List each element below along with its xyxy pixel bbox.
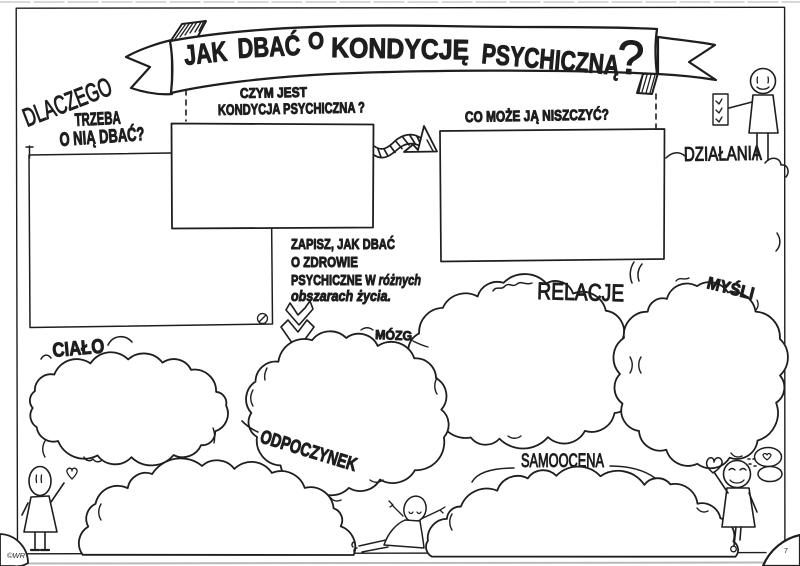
svg-text:©WR: ©WR — [7, 551, 26, 560]
svg-text:KONDYCJA PSYCHICZNA ?: KONDYCJA PSYCHICZNA ? — [218, 99, 365, 119]
svg-text:MÓZG: MÓZG — [375, 327, 413, 343]
svg-text:ZAPISZ, JAK DBAĆ: ZAPISZ, JAK DBAĆ — [291, 235, 395, 253]
svg-text:JAK: JAK — [182, 36, 228, 71]
svg-text:DZIAŁANIA: DZIAŁANIA — [684, 143, 763, 166]
svg-text:7: 7 — [784, 548, 788, 555]
svg-text:O: O — [308, 28, 324, 55]
svg-text:obszarach życia.: obszarach życia. — [291, 288, 391, 305]
svg-text:SAMOOCENA: SAMOOCENA — [521, 451, 604, 472]
svg-text:O ZDROWIE: O ZDROWIE — [291, 254, 358, 271]
svg-text:RELACJE: RELACJE — [537, 278, 625, 307]
svg-text:CZYM JEST: CZYM JEST — [240, 84, 308, 101]
svg-text:?: ? — [615, 31, 645, 86]
svg-text:CO MOŻE JĄ NISZCZYĆ?: CO MOŻE JĄ NISZCZYĆ? — [465, 105, 609, 126]
svg-text:CIAŁO: CIAŁO — [52, 336, 106, 362]
svg-text:DBAĆ: DBAĆ — [237, 30, 302, 64]
svg-text:KONDYCJĘ: KONDYCJĘ — [331, 32, 470, 65]
svg-text:PSYCHICZNE W różnych: PSYCHICZNE W różnych — [291, 272, 421, 289]
